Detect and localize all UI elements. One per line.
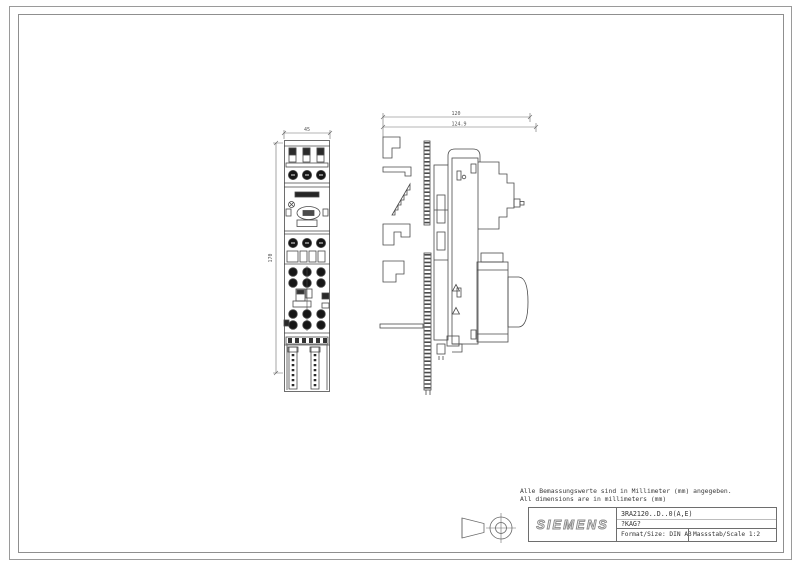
- order-code: ?KAG?: [617, 520, 776, 529]
- side-view-drawing: 120 124.9: [380, 111, 538, 395]
- format-size-label: Format/Size: DIN A3: [617, 529, 688, 541]
- link-module-bars: [284, 251, 330, 264]
- mounting-bracket-profile: [380, 137, 423, 328]
- scale-label: Massstab/Scale 1:2: [688, 529, 776, 541]
- side-depth-dimensions: 120 124.9: [381, 111, 538, 137]
- dimension-label-side-upper: 120: [451, 111, 460, 117]
- dimension-label-front-width: 45: [304, 127, 310, 133]
- front-height-dimension: 170: [268, 141, 283, 375]
- contactor-label-window: [293, 301, 311, 307]
- units-note: Alle Bemassungswerte sind in Millimeter …: [520, 488, 732, 503]
- title-block: SIEMENS 3RA2120..D..0(A,E) ?KAG? Format/…: [528, 507, 777, 542]
- coil-block-profile: [477, 253, 528, 342]
- label-window: [297, 220, 317, 227]
- center-module-profile: [434, 165, 448, 360]
- lower-detail-block: [447, 336, 459, 346]
- title-block-right: 3RA2120..D..0(A,E) ?KAG? Format/Size: DI…: [617, 508, 776, 541]
- breaker-head-profile: [478, 162, 524, 229]
- part-number: 3RA2120..D..0(A,E): [617, 508, 776, 520]
- wiring-conduit: [448, 149, 480, 165]
- units-note-en: All dimensions are in millimeters (mm): [520, 496, 732, 504]
- rotary-knob: [286, 207, 328, 220]
- projection-method-symbol: [452, 506, 527, 550]
- main-body-profile: [452, 158, 478, 352]
- dimension-label-side-overall: 124.9: [451, 122, 466, 128]
- front-width-dimension: 45: [282, 127, 332, 139]
- aux-terminal-strip: [284, 337, 330, 345]
- title-block-bottom-row: Format/Size: DIN A3 Massstab/Scale 1:2: [617, 529, 776, 541]
- siemens-logo: SIEMENS: [536, 517, 609, 532]
- dimension-label-front-height: 170: [268, 253, 274, 262]
- drawing-sheet: 45 170: [0, 0, 800, 566]
- screw-icon: [289, 202, 295, 208]
- breaker-lower-terminal-row: [288, 238, 325, 247]
- din-rail-feet: [287, 345, 327, 390]
- breaker-label-strip: [295, 192, 319, 197]
- contactor-section: [284, 266, 330, 333]
- brand-cell: SIEMENS: [529, 508, 617, 541]
- technical-drawing: 45 170: [0, 0, 800, 566]
- breaker-terminal-row: [288, 170, 325, 179]
- din-rail-comb: [424, 141, 431, 395]
- front-view-drawing: 45 170: [268, 127, 332, 392]
- top-terminal-lugs: [286, 148, 328, 167]
- triangle-markers: [453, 285, 460, 315]
